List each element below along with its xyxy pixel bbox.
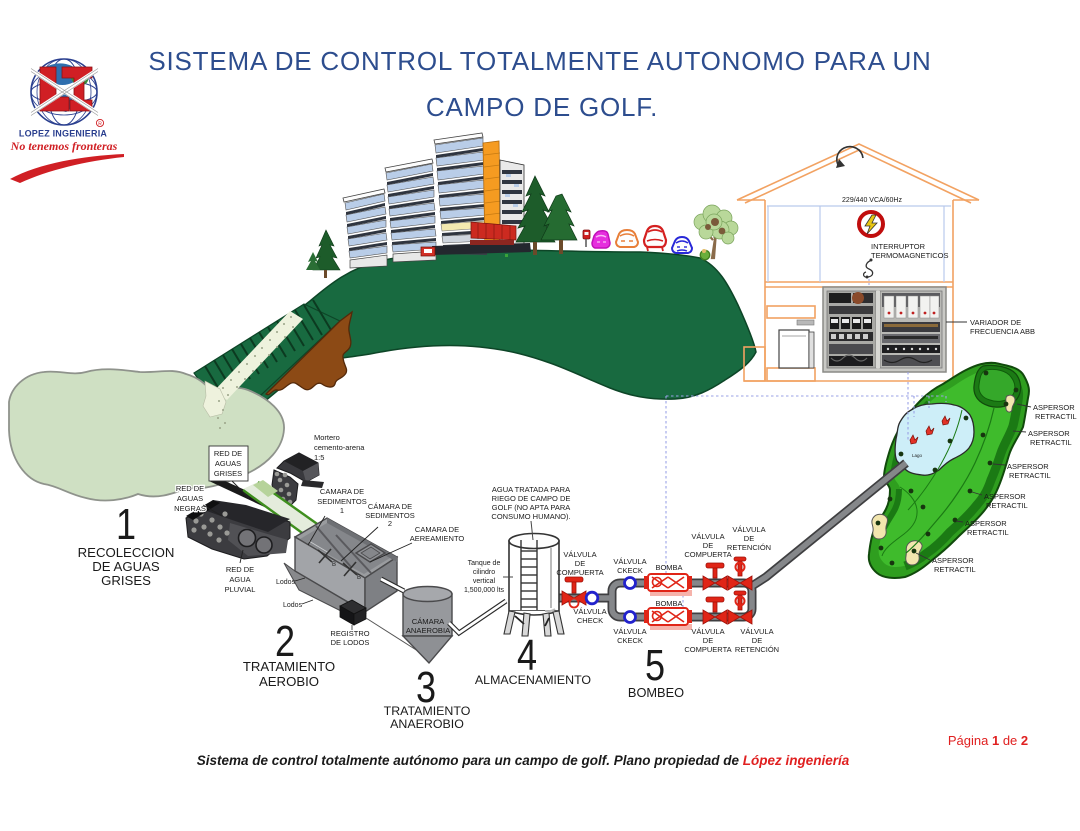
svg-text:BOMBA: BOMBA — [655, 599, 682, 608]
svg-text:CAMPO DE GOLF.: CAMPO DE GOLF. — [426, 92, 658, 122]
svg-text:ASPERSOR: ASPERSOR — [932, 556, 974, 565]
svg-text:CKECK: CKECK — [617, 636, 643, 645]
svg-text:vertical: vertical — [473, 578, 496, 585]
svg-text:DE: DE — [703, 541, 713, 550]
svg-text:ASPERSOR: ASPERSOR — [1033, 403, 1075, 412]
svg-text:1:5: 1:5 — [314, 453, 324, 462]
svg-text:DE: DE — [703, 636, 713, 645]
svg-text:Lodos: Lodos — [283, 602, 303, 609]
svg-text:Lago: Lago — [912, 453, 923, 458]
svg-text:COMPUERTA: COMPUERTA — [684, 550, 731, 559]
svg-text:CAMARA DE: CAMARA DE — [320, 487, 364, 496]
svg-text:RETRACTIL: RETRACTIL — [1035, 412, 1077, 421]
svg-text:PLUVIAL: PLUVIAL — [225, 585, 256, 594]
svg-text:B: B — [357, 575, 361, 581]
svg-text:VÁLVULA: VÁLVULA — [740, 627, 773, 636]
svg-text:5: 5 — [645, 641, 665, 690]
svg-text:DE: DE — [752, 636, 762, 645]
svg-text:229/440 VCA/60Hz: 229/440 VCA/60Hz — [842, 197, 902, 204]
svg-text:RETRACTIL: RETRACTIL — [986, 501, 1028, 510]
svg-text:ASPERSOR: ASPERSOR — [1028, 429, 1070, 438]
svg-text:ANAEROBIA: ANAEROBIA — [406, 626, 451, 635]
svg-text:Lodos: Lodos — [276, 579, 296, 586]
svg-text:ASPERSOR: ASPERSOR — [1007, 462, 1049, 471]
svg-text:AGUA TRATADA PARA: AGUA TRATADA PARA — [492, 485, 570, 494]
svg-text:INTERRUPTOR: INTERRUPTOR — [871, 242, 926, 251]
svg-text:GRISES: GRISES — [214, 469, 242, 478]
svg-text:RED DE: RED DE — [214, 449, 242, 458]
svg-text:ASPERSOR: ASPERSOR — [965, 519, 1007, 528]
svg-text:AGUAS: AGUAS — [215, 459, 241, 468]
svg-text:No tenemos fronteras: No tenemos fronteras — [10, 139, 118, 153]
svg-text:VARIADOR DE: VARIADOR DE — [970, 318, 1021, 327]
svg-text:CÁMARA DE: CÁMARA DE — [368, 502, 412, 511]
svg-text:COMPUERTA: COMPUERTA — [556, 568, 603, 577]
svg-text:COMPUERTA: COMPUERTA — [684, 645, 731, 654]
svg-text:AEROBIO: AEROBIO — [259, 674, 319, 689]
svg-text:CÁMARA: CÁMARA — [412, 617, 445, 626]
svg-text:RETRACTIL: RETRACTIL — [1009, 471, 1051, 480]
svg-text:Tanque de: Tanque de — [468, 560, 501, 567]
svg-text:VÁLVULA: VÁLVULA — [573, 607, 606, 616]
svg-text:RETRACTIL: RETRACTIL — [934, 565, 976, 574]
svg-text:CAMARA DE: CAMARA DE — [415, 525, 459, 534]
svg-text:AGUA: AGUA — [229, 575, 250, 584]
svg-text:RECOLECCION: RECOLECCION — [78, 545, 175, 560]
svg-text:cemento-arena: cemento-arena — [314, 443, 365, 452]
svg-text:SISTEMA DE CONTROL TOTALMENTE: SISTEMA DE CONTROL TOTALMENTE AUTONOMO P… — [148, 46, 931, 76]
svg-text:RED DE: RED DE — [176, 484, 204, 493]
svg-text:Mortero: Mortero — [314, 433, 340, 442]
svg-text:CHECK: CHECK — [577, 616, 603, 625]
svg-text:TRATAMIENTO: TRATAMIENTO — [384, 704, 471, 718]
svg-text:DE: DE — [744, 534, 754, 543]
svg-text:VÁLVULA: VÁLVULA — [732, 525, 765, 534]
svg-text:RED DE: RED DE — [226, 565, 254, 574]
svg-text:RETENCIÓN: RETENCIÓN — [727, 543, 771, 552]
svg-text:ANAEROBIO: ANAEROBIO — [390, 717, 464, 731]
svg-text:SEDIMENTOS: SEDIMENTOS — [317, 497, 366, 506]
svg-text:AGUAS: AGUAS — [177, 494, 203, 503]
svg-text:1: 1 — [340, 506, 344, 515]
svg-text:RETRACTIL: RETRACTIL — [967, 528, 1009, 537]
svg-text:LOPEZ INGENIERIA: LOPEZ INGENIERIA — [19, 129, 108, 139]
svg-text:FRECUENCIA ABB: FRECUENCIA ABB — [970, 327, 1035, 336]
svg-text:GOLF (NO APTA PARA: GOLF (NO APTA PARA — [492, 503, 571, 512]
svg-text:VÁLVULA: VÁLVULA — [613, 627, 646, 636]
svg-text:VÁLVULA: VÁLVULA — [613, 557, 646, 566]
svg-text:Página 1 de 2: Página 1 de 2 — [948, 733, 1028, 748]
svg-text:DE LODOS: DE LODOS — [331, 638, 370, 647]
svg-text:cilindro: cilindro — [473, 569, 495, 576]
svg-text:DE AGUAS: DE AGUAS — [92, 559, 160, 574]
svg-text:REGISTRO: REGISTRO — [330, 629, 369, 638]
svg-text:CKECK: CKECK — [617, 566, 643, 575]
svg-text:Sistema de control totalmente: Sistema de control totalmente autónomo p… — [197, 753, 850, 768]
svg-text:CONSUMO HUMANO).: CONSUMO HUMANO). — [491, 512, 570, 521]
svg-text:1: 1 — [116, 500, 136, 549]
svg-text:1,500,000 lts: 1,500,000 lts — [464, 587, 505, 594]
svg-text:VÁLVULA: VÁLVULA — [563, 550, 596, 559]
svg-text:B: B — [332, 562, 336, 568]
svg-text:VÁLVULA: VÁLVULA — [691, 532, 724, 541]
svg-text:RETENCIÓN: RETENCIÓN — [735, 645, 779, 654]
svg-text:NEGRAS: NEGRAS — [174, 504, 206, 513]
svg-text:BOMBA: BOMBA — [655, 563, 682, 572]
svg-text:VÁLVULA: VÁLVULA — [691, 627, 724, 636]
svg-text:R: R — [98, 122, 102, 128]
svg-text:AEREAMIENTO: AEREAMIENTO — [410, 534, 465, 543]
svg-text:BOMBEO: BOMBEO — [628, 685, 684, 700]
svg-text:TERMOMAGNETICOS: TERMOMAGNETICOS — [871, 251, 949, 260]
svg-text:ALMACENAMIENTO: ALMACENAMIENTO — [475, 673, 591, 687]
svg-text:GRISES: GRISES — [101, 573, 151, 588]
svg-text:DE: DE — [575, 559, 585, 568]
svg-text:ASPERSOR: ASPERSOR — [984, 492, 1026, 501]
svg-text:TRATAMIENTO: TRATAMIENTO — [243, 659, 335, 674]
svg-text:2: 2 — [388, 519, 392, 528]
svg-text:RETRACTIL: RETRACTIL — [1030, 438, 1072, 447]
svg-text:RIEGO DE CAMPO DE: RIEGO DE CAMPO DE — [492, 494, 571, 503]
